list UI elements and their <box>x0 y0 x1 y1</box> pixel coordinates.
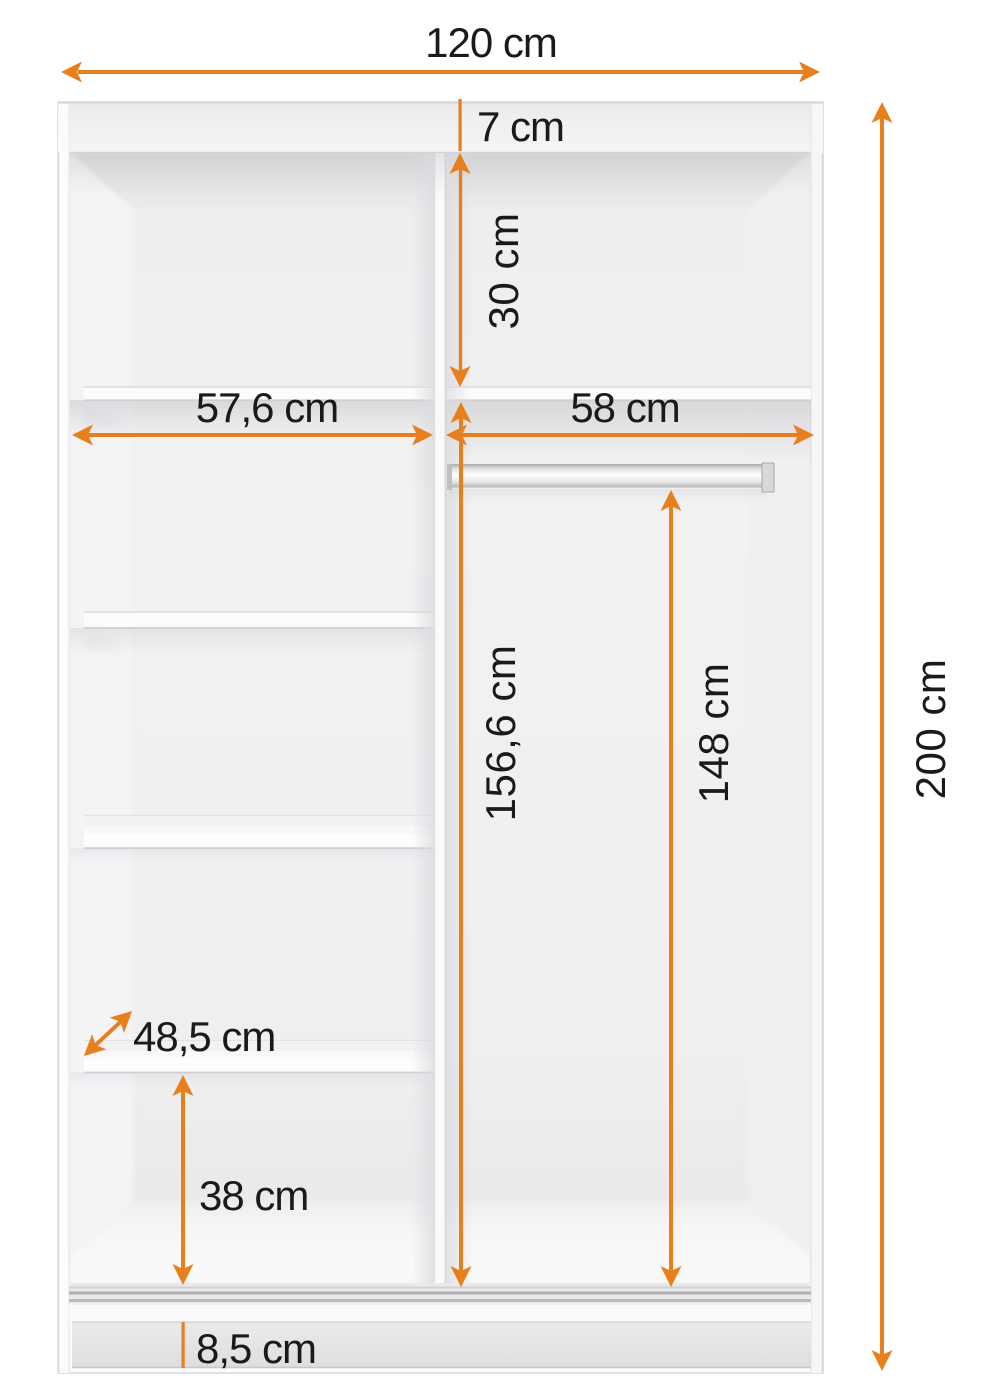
svg-text:7 cm: 7 cm <box>477 103 564 150</box>
svg-text:57,6 cm: 57,6 cm <box>196 384 338 431</box>
svg-text:156,6 cm: 156,6 cm <box>477 645 524 822</box>
svg-text:200 cm: 200 cm <box>907 659 954 800</box>
svg-text:148 cm: 148 cm <box>690 663 737 804</box>
svg-text:30 cm: 30 cm <box>480 213 527 330</box>
svg-text:58 cm: 58 cm <box>570 384 679 431</box>
svg-text:38 cm: 38 cm <box>199 1172 308 1219</box>
svg-text:8,5 cm: 8,5 cm <box>196 1325 316 1372</box>
svg-text:120 cm: 120 cm <box>425 19 557 66</box>
svg-text:48,5 cm: 48,5 cm <box>133 1013 275 1060</box>
